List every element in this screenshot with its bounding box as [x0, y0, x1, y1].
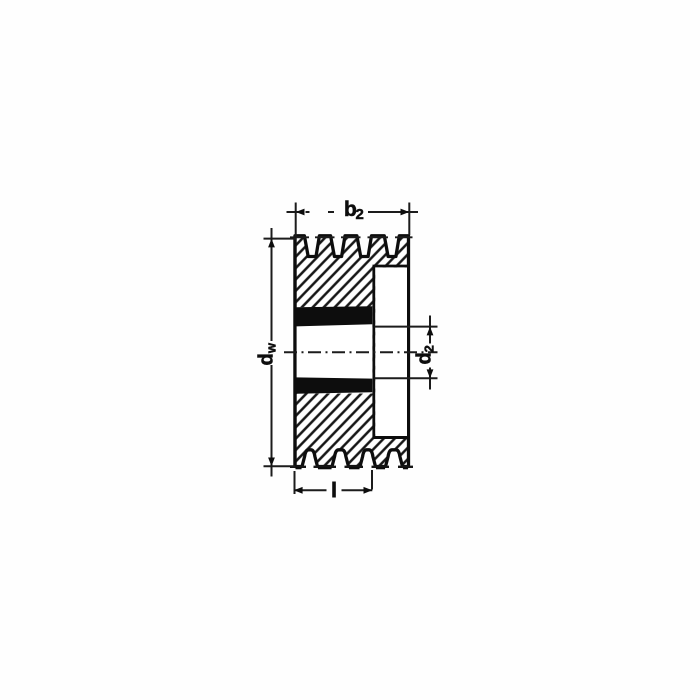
svg-text:d: d — [256, 353, 278, 365]
svg-text:d: d — [414, 352, 436, 364]
svg-text:w: w — [264, 342, 279, 354]
svg-text:l: l — [331, 480, 337, 502]
svg-text:2: 2 — [356, 206, 364, 223]
svg-text:2: 2 — [421, 345, 436, 352]
